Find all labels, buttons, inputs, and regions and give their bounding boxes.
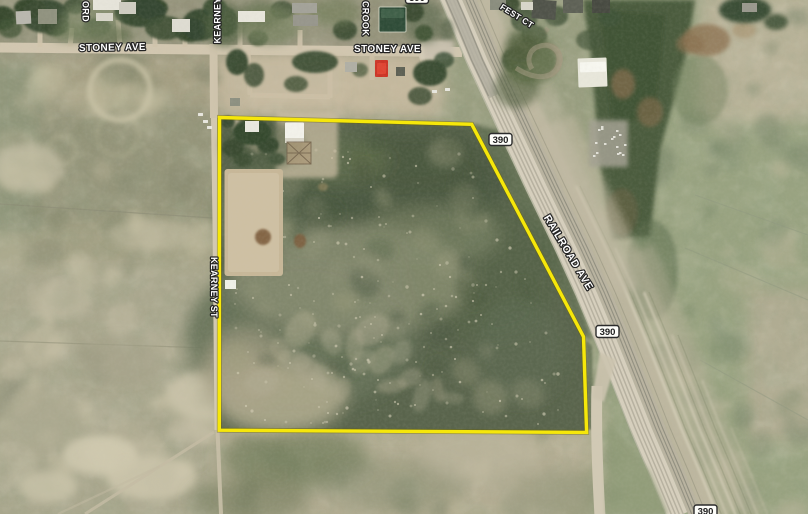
svg-text:390: 390 [493, 135, 509, 146]
svg-text:390: 390 [600, 327, 616, 338]
svg-text:390: 390 [409, 0, 425, 4]
svg-text:KEARNEY ST: KEARNEY ST [209, 257, 219, 318]
svg-text:CROOK: CROOK [361, 1, 371, 36]
svg-text:390: 390 [698, 507, 714, 514]
svg-text:ORD: ORD [81, 1, 91, 22]
svg-text:KEARNEY: KEARNEY [213, 0, 223, 44]
svg-text:STONEY AVE: STONEY AVE [354, 44, 421, 55]
svg-text:STONEY AVE: STONEY AVE [79, 42, 146, 54]
